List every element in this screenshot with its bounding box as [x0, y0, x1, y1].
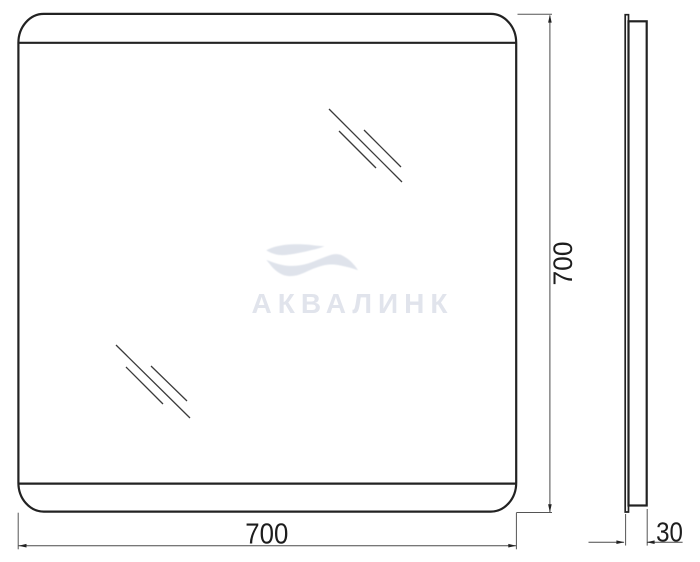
svg-text:30: 30 — [656, 516, 683, 547]
svg-text:700: 700 — [245, 519, 288, 551]
svg-text:700: 700 — [548, 242, 578, 286]
